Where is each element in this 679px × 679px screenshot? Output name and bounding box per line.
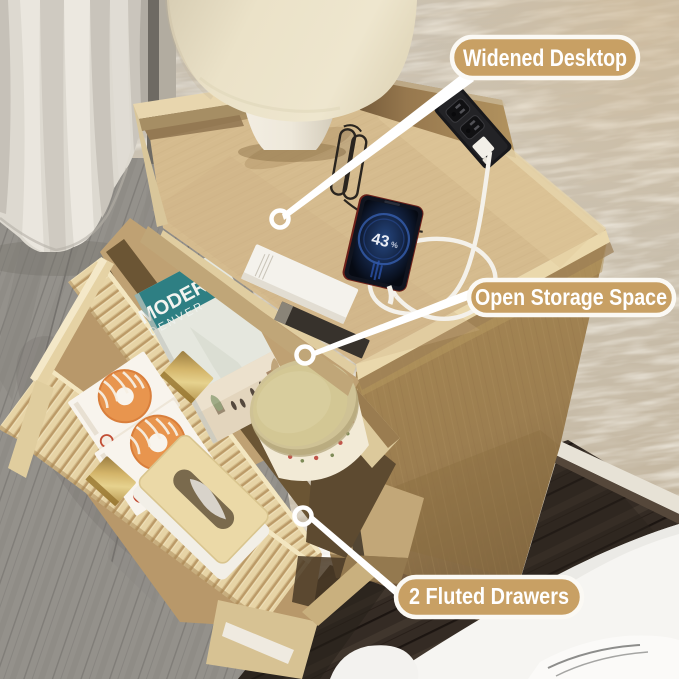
svg-text:Widened Desktop: Widened Desktop	[463, 45, 627, 72]
svg-text:2 Fluted Drawers: 2 Fluted Drawers	[409, 583, 569, 609]
svg-text:Open Storage Space: Open Storage Space	[475, 284, 667, 310]
